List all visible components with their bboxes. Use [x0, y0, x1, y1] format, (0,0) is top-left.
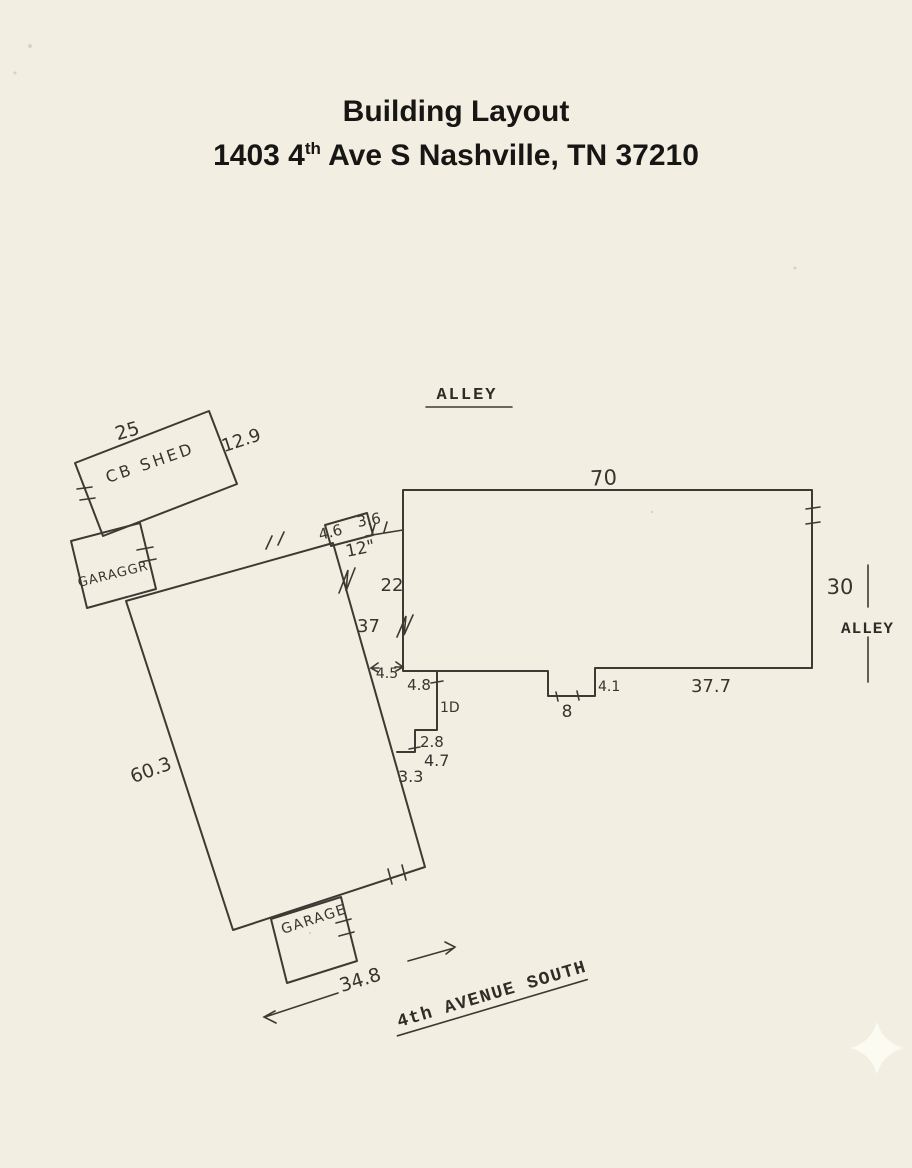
- dim-bottom-377-label: 37.7: [691, 676, 731, 697]
- dim-house-side: 60.3: [127, 753, 174, 788]
- dim-bump-offset: 12": [344, 536, 377, 562]
- dim-house-front-label: 34.8: [337, 964, 384, 997]
- dim-notch-width-label: 8: [562, 702, 573, 722]
- dim-house-side-label: 60.3: [127, 753, 174, 788]
- dim-shed-depth: 12.9: [219, 425, 264, 457]
- lower-garage-label: GARAGE: [279, 902, 348, 938]
- shed-outline: [75, 411, 237, 536]
- dim-bump-gap-label: 3.6: [356, 509, 383, 531]
- dim-shed-width-label: 25: [113, 417, 142, 445]
- alley-top-label: ALLEY: [436, 386, 497, 405]
- speck: [28, 44, 32, 48]
- alley-right-label: ALLEY: [841, 620, 894, 638]
- building-layout-diagram: ALLEY 70 30 ALLEY 25 12.9 CB SHED GARAGG…: [0, 0, 912, 1168]
- lower-garage-label-group: GARAGE: [279, 902, 348, 938]
- dim-main-top-label: 70: [590, 465, 618, 490]
- dim-step-47-label: 4.7: [424, 751, 449, 770]
- dim-gap-45-label: 4.5: [376, 666, 398, 682]
- dim-step-28-label: 2.8: [420, 733, 444, 751]
- dim-main-right-label: 30: [827, 575, 854, 599]
- dim-bump-width-label: 4.6: [317, 521, 345, 544]
- dim-bump-width: 4.6: [317, 521, 345, 544]
- survey-page: Building Layout 1403 4th Ave S Nashville…: [0, 0, 912, 1168]
- dim-porch-48-label: 4.8: [407, 676, 431, 694]
- upper-garage-label: GARAGGR: [76, 559, 150, 591]
- dim-shed-width: 25: [113, 417, 142, 445]
- dim-step-33-label: 3.3: [398, 767, 423, 786]
- avenue-label: 4th AVENUE SOUTH: [395, 958, 589, 1033]
- dim-bump-gap: 3.6: [356, 509, 383, 531]
- upper-garage-label-group: GARAGGR: [76, 559, 150, 591]
- dim-bump-offset-label: 12": [344, 536, 377, 562]
- dim-main-top: 70: [590, 465, 618, 490]
- speck: [309, 932, 311, 934]
- dim-house-front: 34.8: [337, 964, 384, 997]
- dim-shed-depth-label: 12.9: [219, 425, 264, 457]
- avenue-label-group: 4th AVENUE SOUTH: [391, 958, 590, 1036]
- dim-wall-22-label: 22: [381, 575, 404, 596]
- main-building-outline: [403, 490, 812, 696]
- dim-notch-41-label: 4.1: [598, 679, 620, 695]
- speck: [794, 267, 797, 270]
- speck: [651, 511, 653, 513]
- dim-porch-10-label: 1D: [440, 700, 460, 716]
- street-arrow-right: [408, 942, 455, 961]
- dim-wall-37-label: 37: [357, 616, 380, 637]
- house-outline: [126, 543, 425, 930]
- street-arrow-left: [264, 993, 338, 1023]
- lower-garage-ticks: [336, 919, 354, 936]
- speck: [14, 72, 17, 75]
- sparkle-icon: [851, 1022, 903, 1074]
